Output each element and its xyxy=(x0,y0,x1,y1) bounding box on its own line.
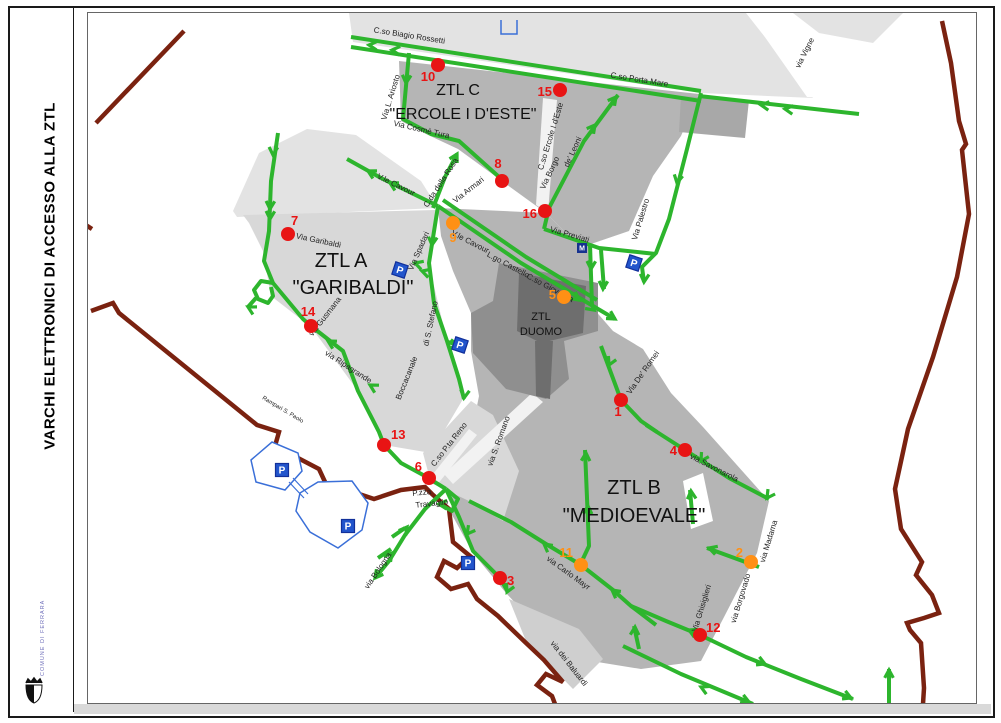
gate-dot-7 xyxy=(281,227,295,241)
street-label: Via Armari xyxy=(451,175,486,205)
gate-dot-9 xyxy=(446,216,460,230)
gate-dot-11 xyxy=(574,558,588,572)
page-title: VARCHI ELETTRONICI DI ACCESSO ALLA ZTL xyxy=(42,102,59,449)
parking-icon: P xyxy=(626,255,642,271)
gate-dot-3 xyxy=(493,571,507,585)
parking-area-link xyxy=(293,478,308,494)
gate-dot-14 xyxy=(304,319,318,333)
gate-number: 13 xyxy=(391,427,405,442)
city-wall xyxy=(895,21,969,703)
gate-number: 3 xyxy=(507,573,514,588)
svg-text:P: P xyxy=(279,466,286,477)
zone-label: ZTL A xyxy=(315,250,368,272)
zone-label: "MEDIOEVALE" xyxy=(563,505,706,527)
gate-number: 8 xyxy=(494,156,501,171)
gate-dot-15 xyxy=(553,83,567,97)
direction-arrow-icon xyxy=(461,390,470,398)
gate-dot-16 xyxy=(538,204,552,218)
bottom-margin xyxy=(74,704,991,714)
parking-area xyxy=(296,481,368,548)
gate-dot-5 xyxy=(557,290,571,304)
svg-text:P: P xyxy=(345,522,352,533)
gate-number: 2 xyxy=(736,545,743,560)
gate-number: 6 xyxy=(415,459,422,474)
parking-area-link xyxy=(289,482,304,498)
svg-text:P: P xyxy=(465,559,472,570)
gate-dot-6 xyxy=(422,471,436,485)
direction-arrow-icon xyxy=(761,102,769,111)
gate-number: 11 xyxy=(559,545,573,560)
gate-number: 5 xyxy=(549,287,556,302)
direction-arrow-icon xyxy=(248,307,257,315)
zone-area xyxy=(233,129,438,217)
direction-arrow-icon xyxy=(785,106,793,115)
zone-label: "GARIBALDI" xyxy=(293,277,414,299)
direction-arrow-icon xyxy=(701,686,710,694)
zone-label: ZTL B xyxy=(607,477,661,499)
gate-number: 4 xyxy=(670,443,678,458)
gate-number: 1 xyxy=(614,404,621,419)
parking-icon: P xyxy=(342,520,355,533)
zone-label: DUOMO xyxy=(520,326,563,338)
parking-icon: P xyxy=(462,557,475,570)
zone-area xyxy=(535,341,553,399)
sidebar: VARCHI ELETTRONICI DI ACCESSO ALLA ZTL C… xyxy=(10,8,74,712)
ztl-map-canvas: PPPPPPMC.so Biagio RossettiC.so Porta Ma… xyxy=(87,12,977,704)
street-label: P.zza xyxy=(412,487,432,498)
transit-stop-icon: M xyxy=(577,243,587,253)
gate-dot-2 xyxy=(744,555,758,569)
city-wall xyxy=(88,215,92,235)
parking-icon: P xyxy=(452,337,468,353)
zone-label: "ERCOLE I D'ESTE" xyxy=(390,106,537,123)
gate-number: 10 xyxy=(421,69,435,84)
gate-number: 16 xyxy=(523,206,537,221)
zone-label: ZTL C xyxy=(436,82,480,99)
gate-number: 9 xyxy=(449,230,456,245)
gate-number: 7 xyxy=(291,213,298,228)
municipality-label: COMUNE DI FERRARA xyxy=(40,600,46,676)
gate-number: 14 xyxy=(301,304,316,319)
street-label: Rampari S. Paolo xyxy=(261,395,305,425)
city-wall xyxy=(96,31,184,123)
direction-arrow-icon xyxy=(767,489,775,498)
page: VARCHI ELETTRONICI DI ACCESSO ALLA ZTL C… xyxy=(0,0,1001,723)
gate-number: 15 xyxy=(538,84,552,99)
parking-icon: P xyxy=(276,464,289,477)
gate-dot-13 xyxy=(377,438,391,452)
gate-dot-4 xyxy=(678,443,692,457)
road xyxy=(590,244,592,306)
gate-dot-12 xyxy=(693,628,707,642)
zone-label: ZTL xyxy=(531,311,551,323)
municipality-crest-icon xyxy=(22,676,48,711)
gate-dot-8 xyxy=(495,174,509,188)
gate-number: 12 xyxy=(706,620,720,635)
svg-text:M: M xyxy=(579,246,585,253)
